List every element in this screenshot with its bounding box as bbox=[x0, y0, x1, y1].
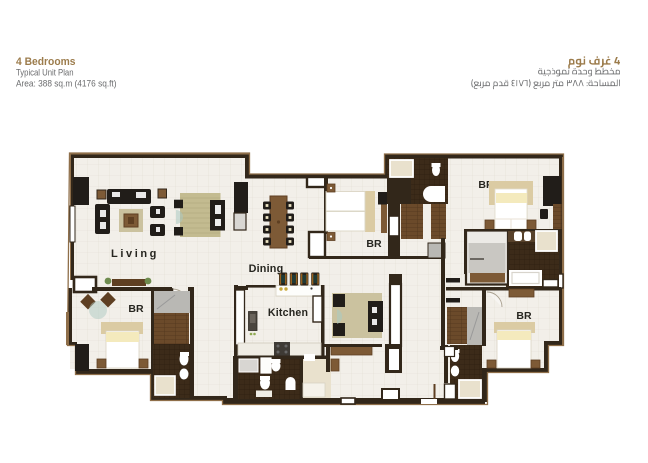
svg-text:Living: Living bbox=[111, 248, 159, 260]
svg-text:BR: BR bbox=[366, 238, 382, 250]
svg-text:Kitchen: Kitchen bbox=[268, 307, 308, 319]
svg-text:Dining: Dining bbox=[249, 263, 284, 275]
svg-text:4 Bedrooms: 4 Bedrooms bbox=[16, 56, 76, 68]
svg-text:Typical Unit Plan: Typical Unit Plan bbox=[16, 68, 74, 78]
svg-text:BR: BR bbox=[128, 303, 144, 315]
svg-text:Area: 388 sq.m (4176 sq.ft): Area: 388 sq.m (4176 sq.ft) bbox=[16, 79, 117, 89]
svg-text:BR: BR bbox=[516, 310, 532, 322]
